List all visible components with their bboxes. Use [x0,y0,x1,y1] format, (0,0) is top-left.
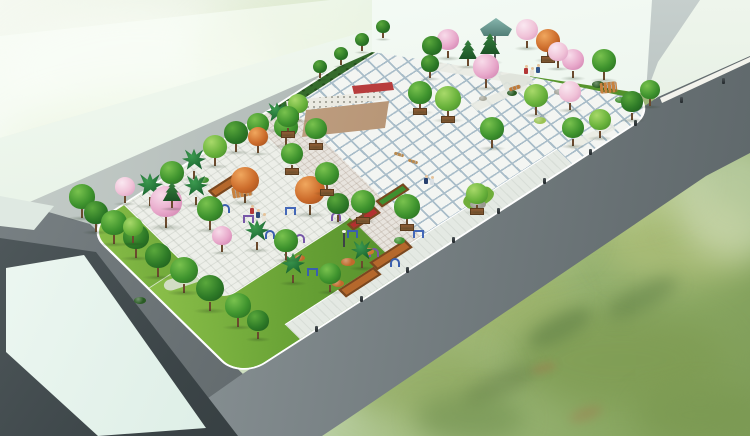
tree-crown [247,310,269,331]
tree-trunk [599,131,601,138]
tree-g1 [145,243,171,277]
tree-trunk [183,284,185,293]
tree-crown [245,219,269,242]
rendering-canvas [0,0,750,436]
tree-g1 [313,60,327,78]
tree-trunk [337,215,339,222]
tree-trunk [631,113,633,120]
tree-g2 [351,190,375,221]
tree-or [231,167,259,203]
tree-trunk [171,201,173,208]
tree-trunk [361,46,363,51]
tree-trunk [113,235,115,244]
tree-g2 [319,263,341,292]
tree-crown [516,19,538,40]
tree-trunk [124,196,126,203]
tree-planter [441,116,455,123]
tree-crown [408,81,432,104]
tree-trunk [165,217,167,228]
tree-crown [376,20,390,33]
tree-g2 [315,162,339,193]
tree-trunk [132,236,134,243]
tree-trunk [491,140,493,148]
tree-g2 [281,143,303,172]
tree-crown [473,54,499,79]
tree-trunk [535,107,537,115]
tree-pk2 [516,19,538,48]
tree-crown [315,162,339,185]
tree-trunk [569,103,571,110]
tree-g3 [524,84,548,115]
tree-trunk [235,144,237,152]
tree-pk [473,54,499,88]
tree-crown [562,117,584,138]
tree-crown [479,33,501,54]
tree-crown [145,243,171,268]
tree-crown [334,47,348,60]
tree-crown [548,42,568,61]
tree-trunk [319,73,321,78]
tree-trunk [572,139,574,146]
tree-trunk [382,33,384,38]
tree-crown [274,229,298,252]
tree-crown [355,33,369,46]
tree-trunk [214,158,216,166]
tree-g2 [305,118,327,147]
tree-planter [285,168,299,175]
tree-planter [320,189,334,196]
tree-crown [351,239,373,260]
tree-trunk [209,302,211,311]
tree-planter [309,143,323,150]
tree-pm [245,219,269,250]
tree-planter [470,208,484,215]
tree-crown [589,109,611,130]
tree-g2 [408,81,432,112]
tree-layer [0,0,750,436]
tree-crown [123,217,143,236]
tree-trunk [572,71,574,78]
tree-crown [184,174,208,197]
tree-trunk [292,275,294,283]
tree-or [248,127,268,153]
tree-g3 [466,183,488,212]
tree-trunk [285,252,287,260]
tree-cf [162,182,182,208]
tree-crown [466,183,488,204]
tree-g1 [334,47,348,65]
tree-trunk [257,332,259,339]
tree-g2 [274,229,298,260]
tree-trunk [221,245,223,252]
tree-trunk [649,99,651,106]
tree-crown [327,193,349,214]
tree-trunk [329,285,331,292]
tree-g1 [355,33,369,51]
tree-trunk [447,51,449,58]
tree-crown [197,196,223,221]
tree-crown [248,127,268,146]
tree-g1 [247,310,269,339]
tree-crown [162,182,182,201]
tree-g1 [376,20,390,38]
tree-g2 [640,80,660,106]
tree-g1 [327,193,349,222]
tree-crown [313,60,327,73]
tree-trunk [135,249,137,258]
tree-crown [212,226,232,245]
tree-crown [435,86,461,111]
tree-pk [212,226,232,252]
tree-g2 [562,117,584,146]
tree-g3 [123,217,143,243]
tree-g3 [435,86,461,120]
tree-g2 [170,257,198,293]
tree-trunk [467,59,469,66]
tree-trunk [340,60,342,65]
tree-crown [305,118,327,139]
tree-trunk [309,205,311,215]
tree-crown [351,190,375,213]
tree-trunk [603,72,605,80]
tree-planter [400,224,414,231]
tree-trunk [157,268,159,277]
tree-crown [592,49,616,72]
tree-g1 [196,275,224,311]
tree-pk2 [548,42,568,68]
tree-g2 [394,194,420,228]
tree-trunk [526,41,528,48]
tree-crown [277,106,299,127]
tree-crown [422,36,442,55]
tree-crown [115,177,135,196]
tree-trunk [95,224,97,232]
tree-trunk [557,61,559,68]
tree-crown [640,80,660,99]
tree-planter [413,108,427,115]
tree-g3 [589,109,611,138]
tree-trunk [244,194,246,203]
tree-crown [559,81,581,102]
tree-trunk [257,146,259,153]
tree-g2 [197,196,223,230]
tree-trunk [237,318,239,327]
tree-g2 [277,106,299,135]
tree-crown [524,84,548,107]
tree-crown [281,143,303,164]
tree-trunk [81,209,83,218]
tree-crown [196,275,224,302]
tree-pk2 [115,177,135,203]
tree-g2 [480,117,504,148]
tree-trunk [256,242,258,250]
tree-crown [421,55,439,72]
tree-pm [351,239,373,268]
tree-crown [394,194,420,219]
tree-pk2 [559,81,581,110]
tree-g2 [592,49,616,80]
tree-trunk [209,221,211,230]
tree-crown [170,257,198,284]
tree-crown [231,167,259,194]
tree-trunk [361,261,363,268]
tree-trunk [485,79,487,88]
tree-g1 [421,55,439,78]
tree-g1 [224,121,248,152]
tree-trunk [429,72,431,78]
tree-crown [319,263,341,284]
tree-crown [480,117,504,140]
tree-planter [281,131,295,138]
tree-planter [356,217,370,224]
